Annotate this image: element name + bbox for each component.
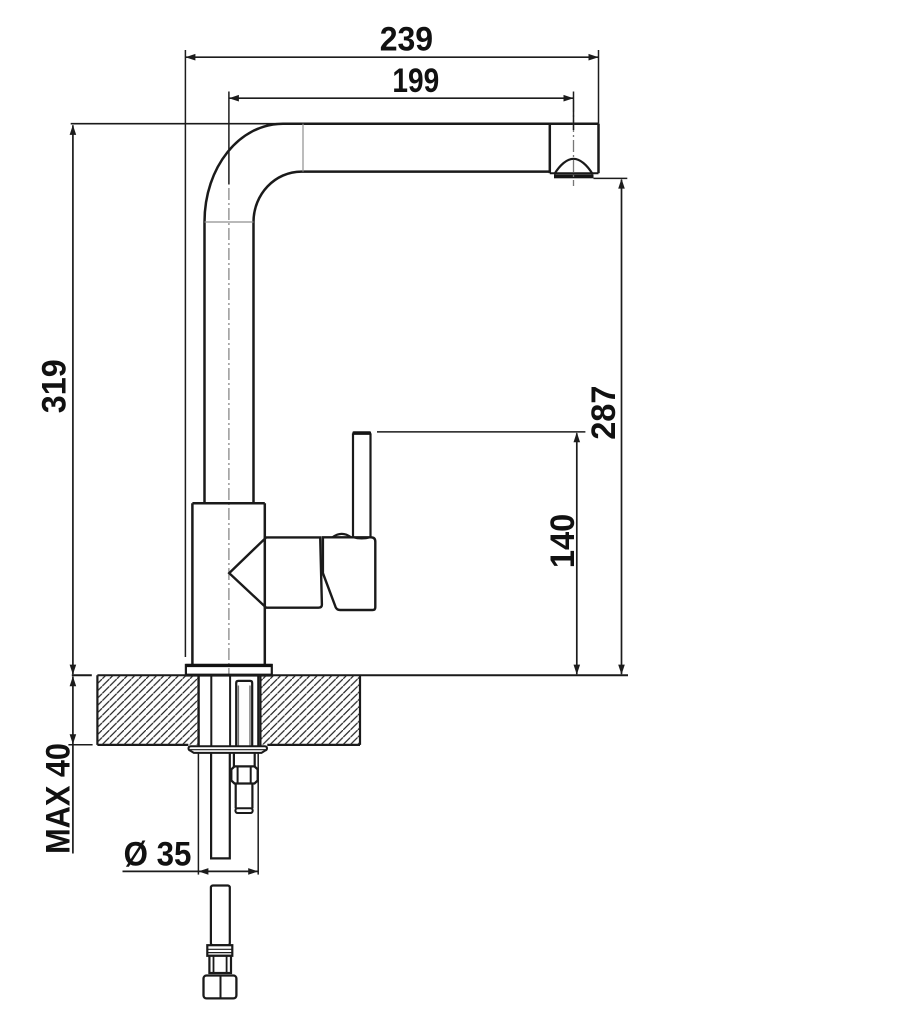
svg-text:239: 239 [380,20,433,58]
svg-text:Ø 35: Ø 35 [124,835,192,873]
svg-text:140: 140 [544,514,582,568]
svg-text:MAX 40: MAX 40 [39,743,77,854]
svg-text:287: 287 [585,386,623,440]
svg-text:319: 319 [36,359,74,413]
svg-text:199: 199 [392,62,439,100]
